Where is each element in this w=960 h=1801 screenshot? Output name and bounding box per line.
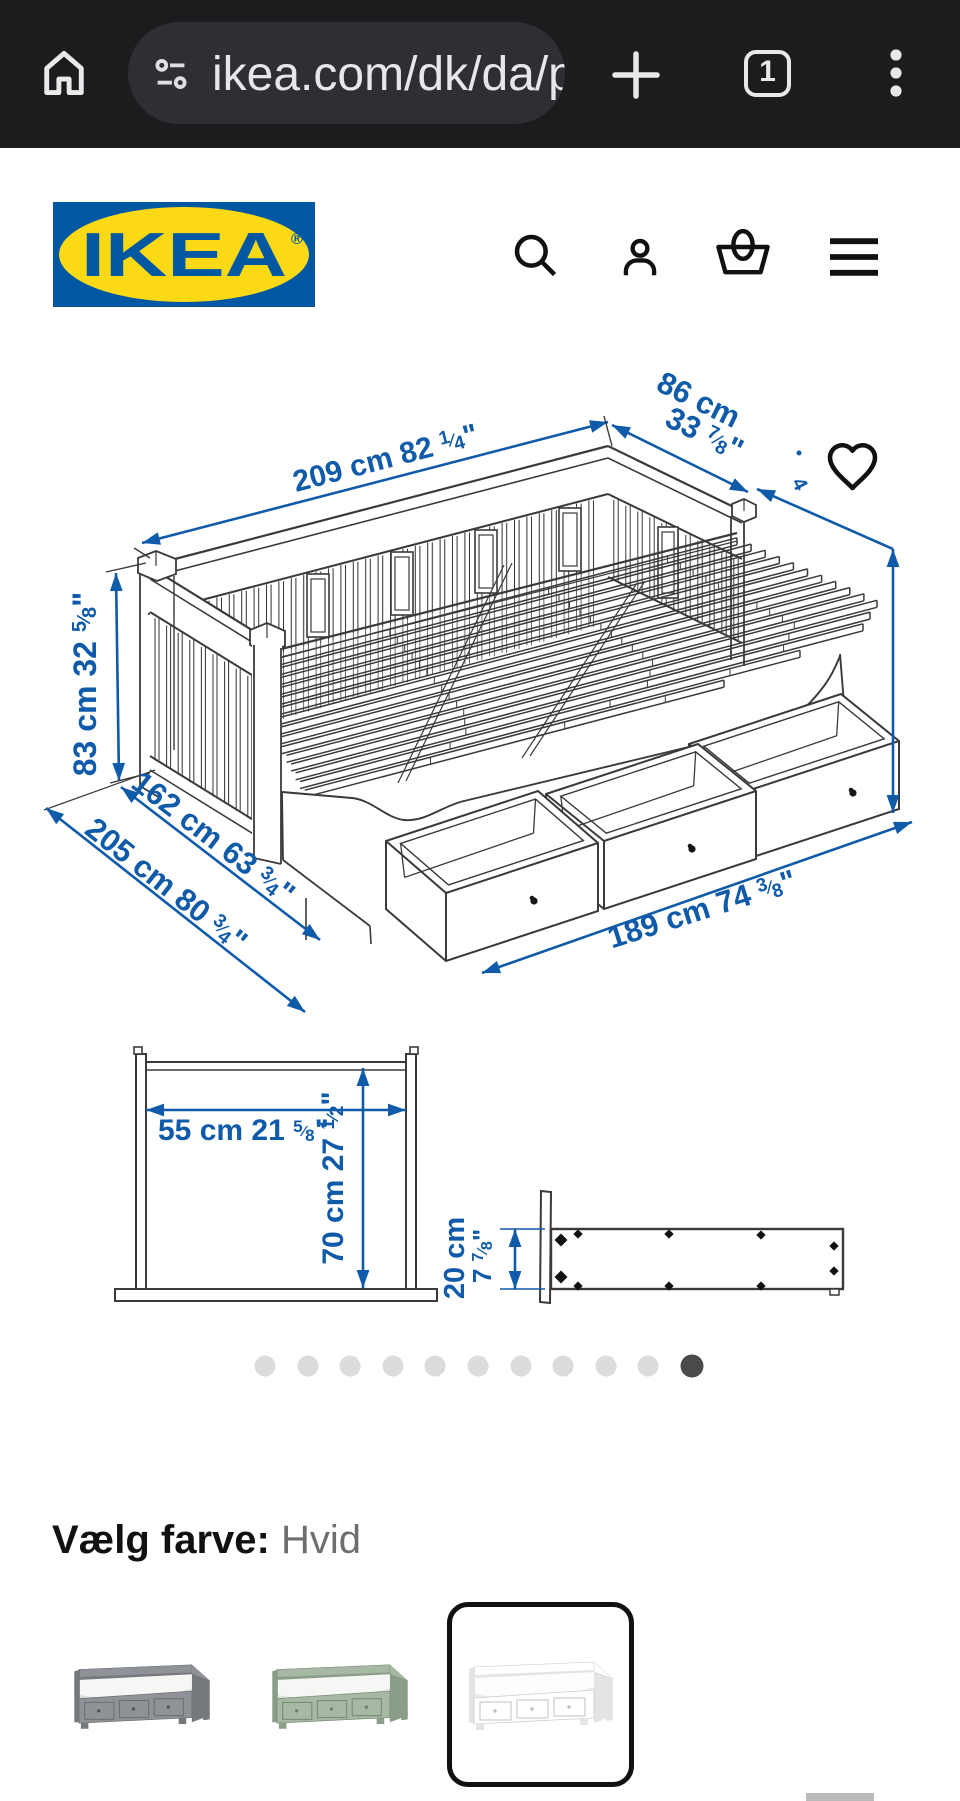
svg-text:83 cm 32 5⁄8": 83 cm 32 5⁄8" bbox=[66, 592, 103, 777]
svg-text:7 7⁄8": 7 7⁄8" bbox=[467, 1229, 497, 1283]
svg-text:55 cm 21 5⁄8": 55 cm 21 5⁄8" bbox=[158, 1114, 329, 1147]
svg-text:4: 4 bbox=[787, 474, 812, 495]
